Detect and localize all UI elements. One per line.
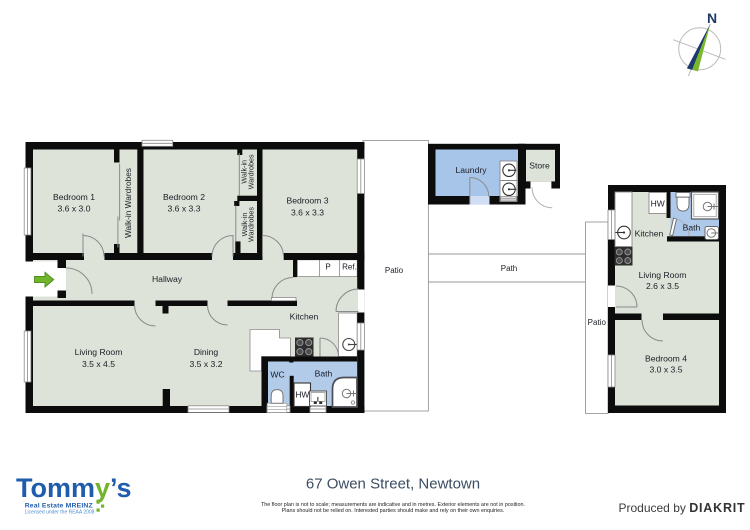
svg-text:Hallway: Hallway [152, 274, 183, 284]
svg-text:Living Room: Living Room [75, 347, 123, 357]
svg-text:3.5 x 3.2: 3.5 x 3.2 [190, 359, 223, 369]
svg-text:Bath: Bath [315, 369, 333, 379]
svg-text:Bedroom 2: Bedroom 2 [163, 192, 205, 202]
svg-text:3.5 x 4.5: 3.5 x 4.5 [82, 359, 115, 369]
svg-text:3.0 x 3.5: 3.0 x 3.5 [650, 365, 683, 375]
svg-text:3.6 x 3.3: 3.6 x 3.3 [168, 204, 201, 214]
svg-text:HW: HW [651, 199, 665, 209]
svg-text:Laundry: Laundry [455, 165, 487, 175]
svg-text:Kitchen: Kitchen [635, 229, 664, 239]
svg-text:Bedroom 1: Bedroom 1 [53, 192, 95, 202]
svg-text:Produced by DIAKRIT: Produced by DIAKRIT [618, 501, 745, 515]
svg-text:Kitchen: Kitchen [290, 312, 319, 322]
svg-text:Bedroom 3: Bedroom 3 [286, 196, 328, 206]
svg-text:3.6 x 3.3: 3.6 x 3.3 [291, 208, 324, 218]
svg-text:67 Owen Street, Newtown: 67 Owen Street, Newtown [306, 475, 480, 492]
svg-text:P: P [325, 263, 330, 272]
svg-text:HW: HW [295, 390, 309, 400]
svg-text:2.6 x 3.5: 2.6 x 3.5 [646, 281, 679, 291]
svg-text:Path: Path [501, 264, 517, 273]
svg-text:Bath: Bath [683, 223, 701, 233]
svg-text:Tommy’s: Tommy’s [16, 473, 132, 503]
svg-text:Plans should not be relied on.: Plans should not be relied on. Intereste… [282, 508, 505, 514]
svg-text:WC: WC [270, 370, 284, 380]
svg-text:Real Estate MREINZ: Real Estate MREINZ [25, 503, 93, 510]
svg-text:N: N [707, 10, 717, 26]
svg-text:Store: Store [529, 161, 550, 171]
svg-text:Wardrobes: Wardrobes [246, 154, 255, 189]
svg-text:Wardrobes: Wardrobes [247, 207, 256, 242]
svg-text:Dining: Dining [194, 347, 219, 357]
svg-text:Licensed under the REAA 2008: Licensed under the REAA 2008 [25, 510, 95, 516]
svg-text:3.6 x 3.0: 3.6 x 3.0 [58, 204, 91, 214]
svg-text:Patio: Patio [588, 318, 607, 327]
svg-text:Ref.: Ref. [342, 263, 357, 272]
svg-text:Living Room: Living Room [639, 270, 687, 280]
svg-text:Patio: Patio [385, 266, 404, 275]
svg-text:Walk-in Wardrobes: Walk-in Wardrobes [123, 168, 133, 238]
svg-text:Bedroom 4: Bedroom 4 [645, 354, 687, 364]
